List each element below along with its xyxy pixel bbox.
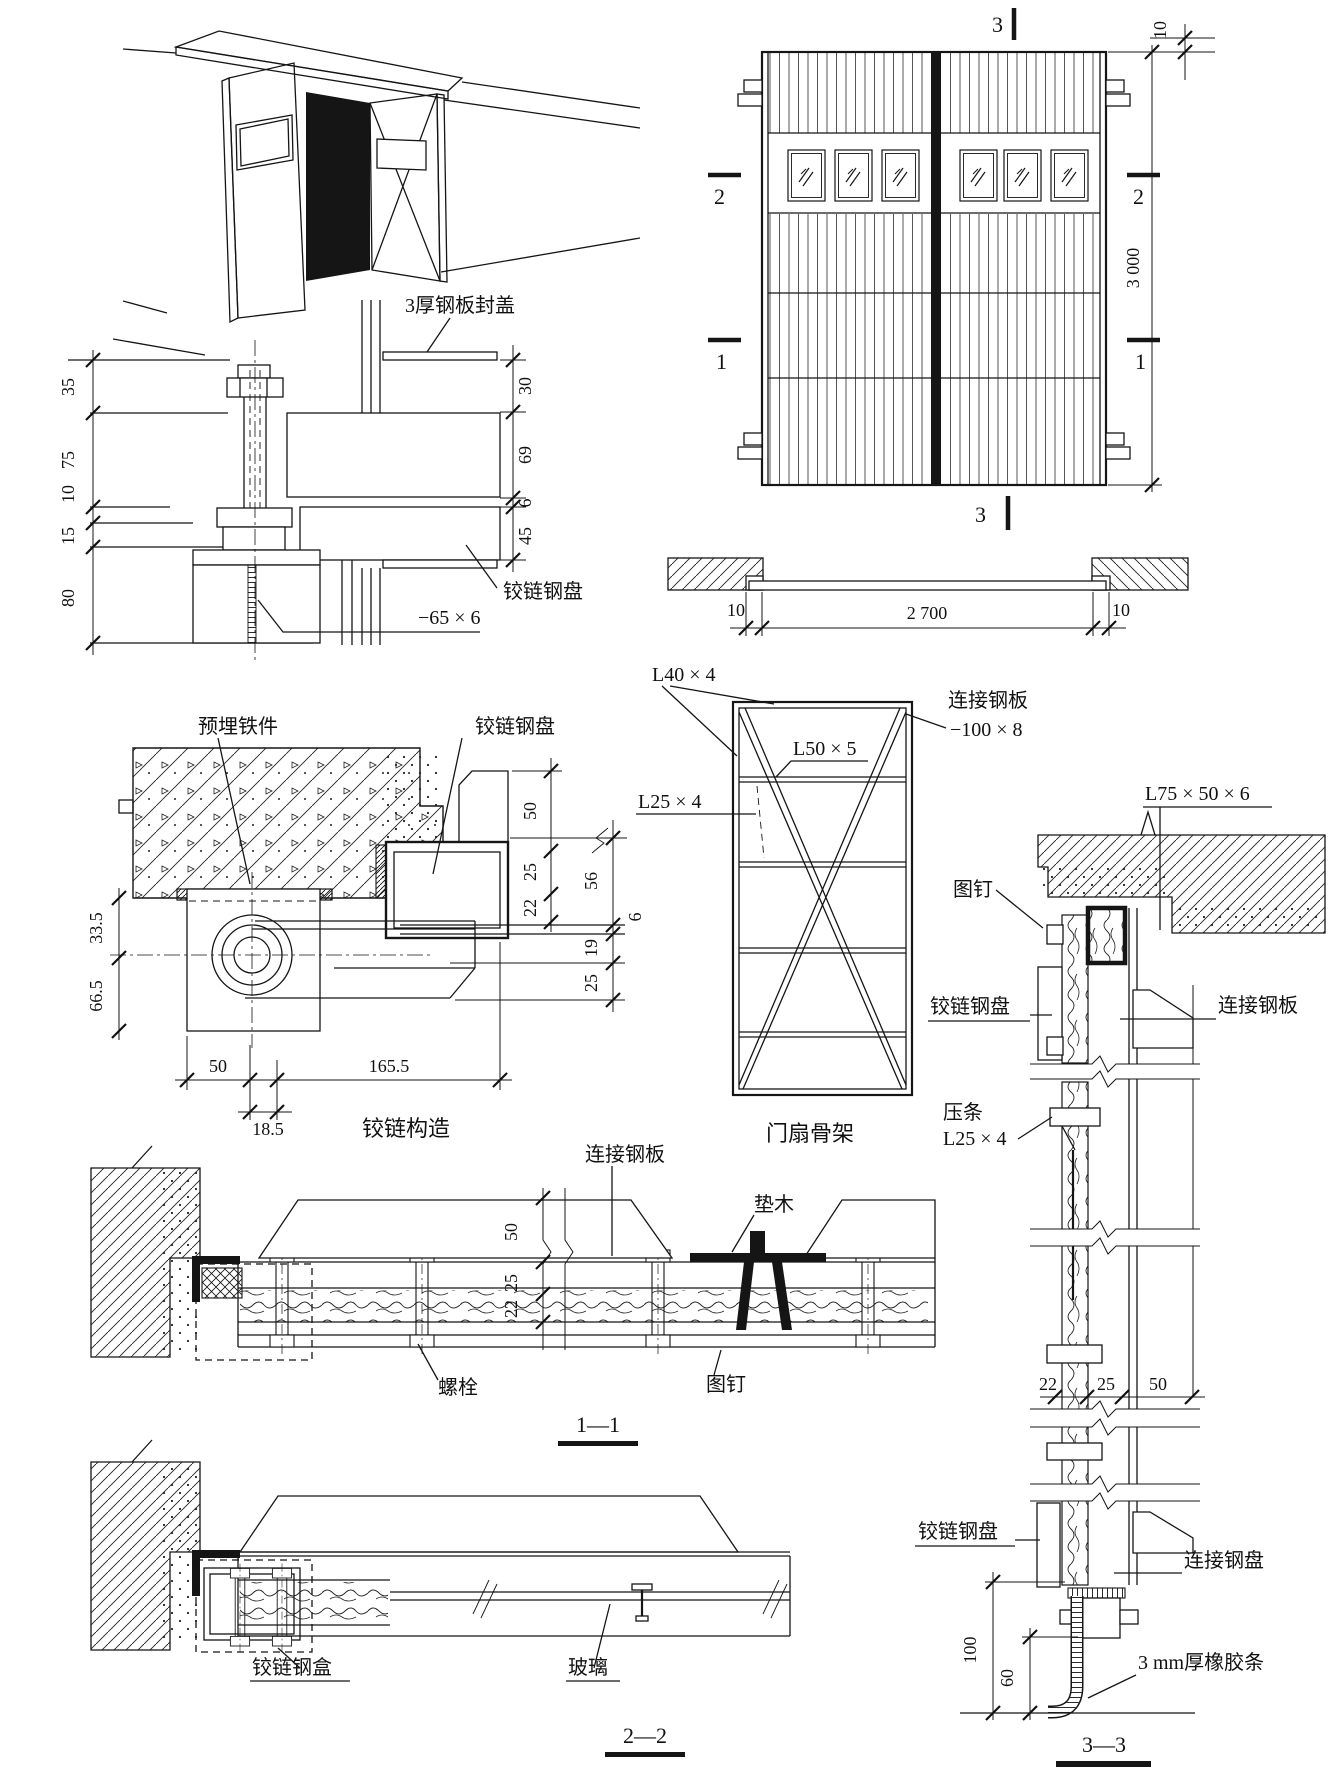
label-hinge-plate-bottom: 铰链钢盘 <box>918 1520 998 1543</box>
dim-15: 15 <box>58 527 78 545</box>
label-angle-l75: L75 × 50 × 6 <box>1145 783 1250 805</box>
caption-2-2: 2—2 <box>623 1723 667 1748</box>
label-connecting-plate: 连接钢板 <box>948 689 1028 712</box>
door-opening-dark <box>306 92 370 281</box>
caption-hinge-construction: 铰链构造 <box>362 1116 450 1141</box>
tack <box>1047 925 1063 944</box>
label-bead1: 压条 <box>943 1101 983 1124</box>
dim-50i: 50 <box>520 802 540 820</box>
dim-10-left: 10 <box>727 600 745 620</box>
section3-marker-bottom: 3 <box>975 502 986 527</box>
dim-50-s11: 50 <box>501 1223 521 1241</box>
dim-50-s33: 50 <box>1149 1374 1167 1394</box>
dim-80: 80 <box>58 589 78 607</box>
dim-25o: 25 <box>581 974 601 992</box>
steel-cover-plate <box>383 352 497 360</box>
label-l25x4: L25 × 4 <box>638 791 702 813</box>
gusset-lower <box>1133 1512 1193 1553</box>
top-rail-beam <box>287 413 500 497</box>
dim-60: 60 <box>997 1669 1017 1687</box>
label-tack-s11: 图钉 <box>706 1373 746 1396</box>
pivot-detail: 35 75 10 15 80 30 69 6 45 3厚钢板封盖 铰链钢盘 −6… <box>58 294 583 660</box>
dim-50b: 50 <box>209 1056 227 1076</box>
label-hinge-box: 铰链钢盒 <box>252 1656 332 1679</box>
dim-165-5: 165.5 <box>369 1056 410 1076</box>
section-3-3: 22 25 50 100 60 L75 × 50 × 6 图钉 铰链钢盘 连接钢… <box>915 783 1325 1767</box>
dim-10-right: 10 <box>1112 600 1130 620</box>
label-bar-65x6: −65 × 6 <box>418 607 481 629</box>
section1-marker-right: 1 <box>1135 349 1146 374</box>
pivot-cup-box <box>187 889 320 1031</box>
section3-marker-top: 3 <box>992 12 1003 37</box>
construction-drawing-sheet: 3 3 2 2 1 1 10 3 000 10 2 700 10 <box>0 0 1328 1779</box>
door-window <box>788 150 825 201</box>
label-l40x4: L40 × 4 <box>652 664 716 686</box>
dim-22-s33: 22 <box>1039 1374 1057 1394</box>
label-blocking: 垫木 <box>754 1193 794 1216</box>
dim-3000: 3 000 <box>1123 248 1143 289</box>
left-door-leaf <box>229 63 305 318</box>
label-steel-cover: 3厚钢板封盖 <box>405 294 515 317</box>
dim-25i: 25 <box>520 863 540 881</box>
dim-10: 10 <box>58 485 78 503</box>
dim-56: 56 <box>581 872 601 890</box>
dim-22i: 22 <box>520 899 540 917</box>
label-plate-top-s33: 连接钢板 <box>1218 994 1298 1017</box>
label-hinge-plate: 铰链钢盘 <box>503 580 583 603</box>
hinge-construction-detail: 50 25 22 56 6 19 25 33.5 66.5 50 165.5 1… <box>86 715 645 1141</box>
label-hinge-plate-top: 铰链钢盘 <box>930 995 1010 1018</box>
perspective-view <box>113 31 640 355</box>
door-leaf-section <box>1062 915 1088 1063</box>
door-elevation: 3 3 2 2 1 1 10 3 000 <box>708 8 1215 530</box>
head-plan-strip: 10 2 700 10 <box>668 558 1188 636</box>
dim-69: 69 <box>515 446 535 464</box>
section2-marker-right: 2 <box>1133 184 1144 209</box>
label-glass: 玻璃 <box>568 1656 608 1679</box>
caption-3-3: 3—3 <box>1082 1732 1126 1757</box>
dim-19: 19 <box>581 939 601 957</box>
dim-6o: 6 <box>625 913 645 922</box>
label-rubber-strip: 3 mm厚橡胶条 <box>1138 1651 1264 1674</box>
dim-66-5: 66.5 <box>86 980 106 1012</box>
section2-marker-left: 2 <box>714 184 725 209</box>
dim-30: 30 <box>515 377 535 395</box>
dim-100: 100 <box>960 1637 980 1664</box>
center-meeting-stile <box>931 52 941 485</box>
bead-l25 <box>1050 1108 1100 1126</box>
label-embedded-iron: 预埋铁件 <box>198 715 278 738</box>
label-bolt: 螺栓 <box>438 1376 478 1399</box>
dim-75: 75 <box>58 451 78 469</box>
dim-22-s11: 22 <box>501 1300 521 1318</box>
dim-6: 6 <box>515 499 535 508</box>
dim-10-top: 10 <box>1150 21 1170 39</box>
dim-35: 35 <box>58 378 78 396</box>
label-l50x5: L50 × 5 <box>793 738 857 760</box>
dim-25-s11: 25 <box>501 1274 521 1292</box>
door-slab-plan <box>749 581 1106 590</box>
top-rail-section <box>1088 908 1125 963</box>
caption-1-1: 1—1 <box>576 1412 620 1437</box>
dim-25-s33: 25 <box>1097 1374 1115 1394</box>
plank-band <box>768 53 930 133</box>
hinge-steel-plate-box <box>386 842 508 938</box>
section1-marker-left: 1 <box>716 349 727 374</box>
caption-door-skeleton: 门扇骨架 <box>766 1121 854 1146</box>
section-2-2: 铰链钢盒 玻璃 2—2 <box>91 1440 790 1757</box>
label-connecting-plate-s11: 连接钢板 <box>585 1143 665 1166</box>
dim-33-5: 33.5 <box>86 912 106 944</box>
label-bead2: L25 × 4 <box>943 1128 1007 1150</box>
dim-18-5: 18.5 <box>252 1119 284 1139</box>
label-plate-100x8: −100 × 8 <box>950 719 1023 741</box>
dim-2700: 2 700 <box>907 603 948 623</box>
bottom-shoe <box>1078 1598 1120 1638</box>
door-skeleton: L40 × 4 连接钢板 −100 × 8 L50 × 5 L25 × 4 门扇… <box>636 664 1028 1146</box>
label-hinge-plate-2: 铰链钢盘 <box>475 715 555 738</box>
hinge-plate-lower <box>1037 1503 1060 1587</box>
label-tack-s33: 图钉 <box>953 878 993 901</box>
section-1-1: 50 25 22 连接钢板 垫木 螺栓 图钉 1—1 <box>91 1143 935 1446</box>
dim-45: 45 <box>515 527 535 545</box>
connecting-plate-section <box>259 1200 672 1258</box>
pivot-socket <box>193 565 320 643</box>
label-plate-bottom-s33: 连接钢盘 <box>1184 1549 1264 1572</box>
